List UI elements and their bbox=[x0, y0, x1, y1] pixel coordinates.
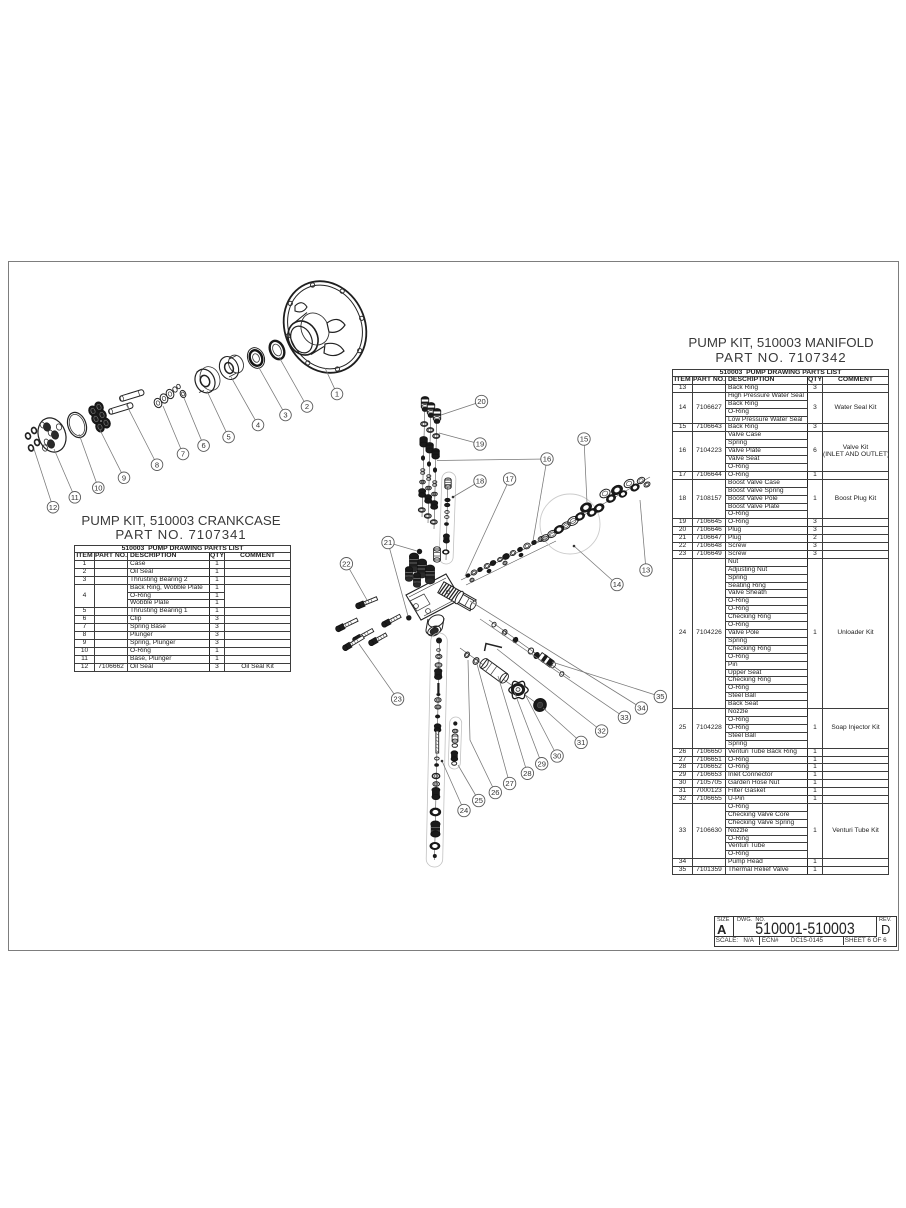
svg-text:20: 20 bbox=[477, 397, 485, 406]
svg-text:24: 24 bbox=[460, 806, 468, 815]
svg-text:2: 2 bbox=[305, 402, 309, 411]
svg-text:15: 15 bbox=[580, 435, 588, 444]
svg-text:18: 18 bbox=[476, 477, 484, 486]
svg-text:14: 14 bbox=[613, 580, 621, 589]
svg-text:16: 16 bbox=[543, 455, 551, 464]
svg-text:6: 6 bbox=[201, 441, 205, 450]
svg-text:8: 8 bbox=[155, 460, 159, 469]
svg-text:34: 34 bbox=[637, 704, 645, 713]
svg-text:19: 19 bbox=[476, 440, 484, 449]
svg-text:32: 32 bbox=[597, 727, 605, 736]
svg-text:21: 21 bbox=[384, 538, 392, 547]
svg-text:30: 30 bbox=[553, 752, 561, 761]
svg-text:28: 28 bbox=[523, 769, 531, 778]
svg-text:33: 33 bbox=[620, 713, 628, 722]
svg-text:11: 11 bbox=[71, 493, 79, 502]
svg-text:13: 13 bbox=[642, 566, 650, 575]
svg-text:1: 1 bbox=[335, 390, 339, 399]
svg-text:26: 26 bbox=[491, 788, 499, 797]
svg-text:23: 23 bbox=[393, 695, 401, 704]
svg-text:31: 31 bbox=[577, 738, 585, 747]
svg-text:4: 4 bbox=[256, 421, 260, 430]
svg-text:35: 35 bbox=[656, 692, 664, 701]
svg-text:17: 17 bbox=[505, 475, 513, 484]
svg-text:27: 27 bbox=[505, 779, 513, 788]
svg-text:10: 10 bbox=[94, 483, 102, 492]
svg-text:25: 25 bbox=[474, 796, 482, 805]
svg-text:7: 7 bbox=[181, 450, 185, 459]
svg-text:5: 5 bbox=[226, 433, 230, 442]
svg-text:3: 3 bbox=[283, 411, 287, 420]
svg-text:12: 12 bbox=[49, 503, 57, 512]
svg-text:29: 29 bbox=[537, 759, 545, 768]
svg-text:22: 22 bbox=[342, 559, 350, 568]
svg-text:9: 9 bbox=[122, 473, 126, 482]
